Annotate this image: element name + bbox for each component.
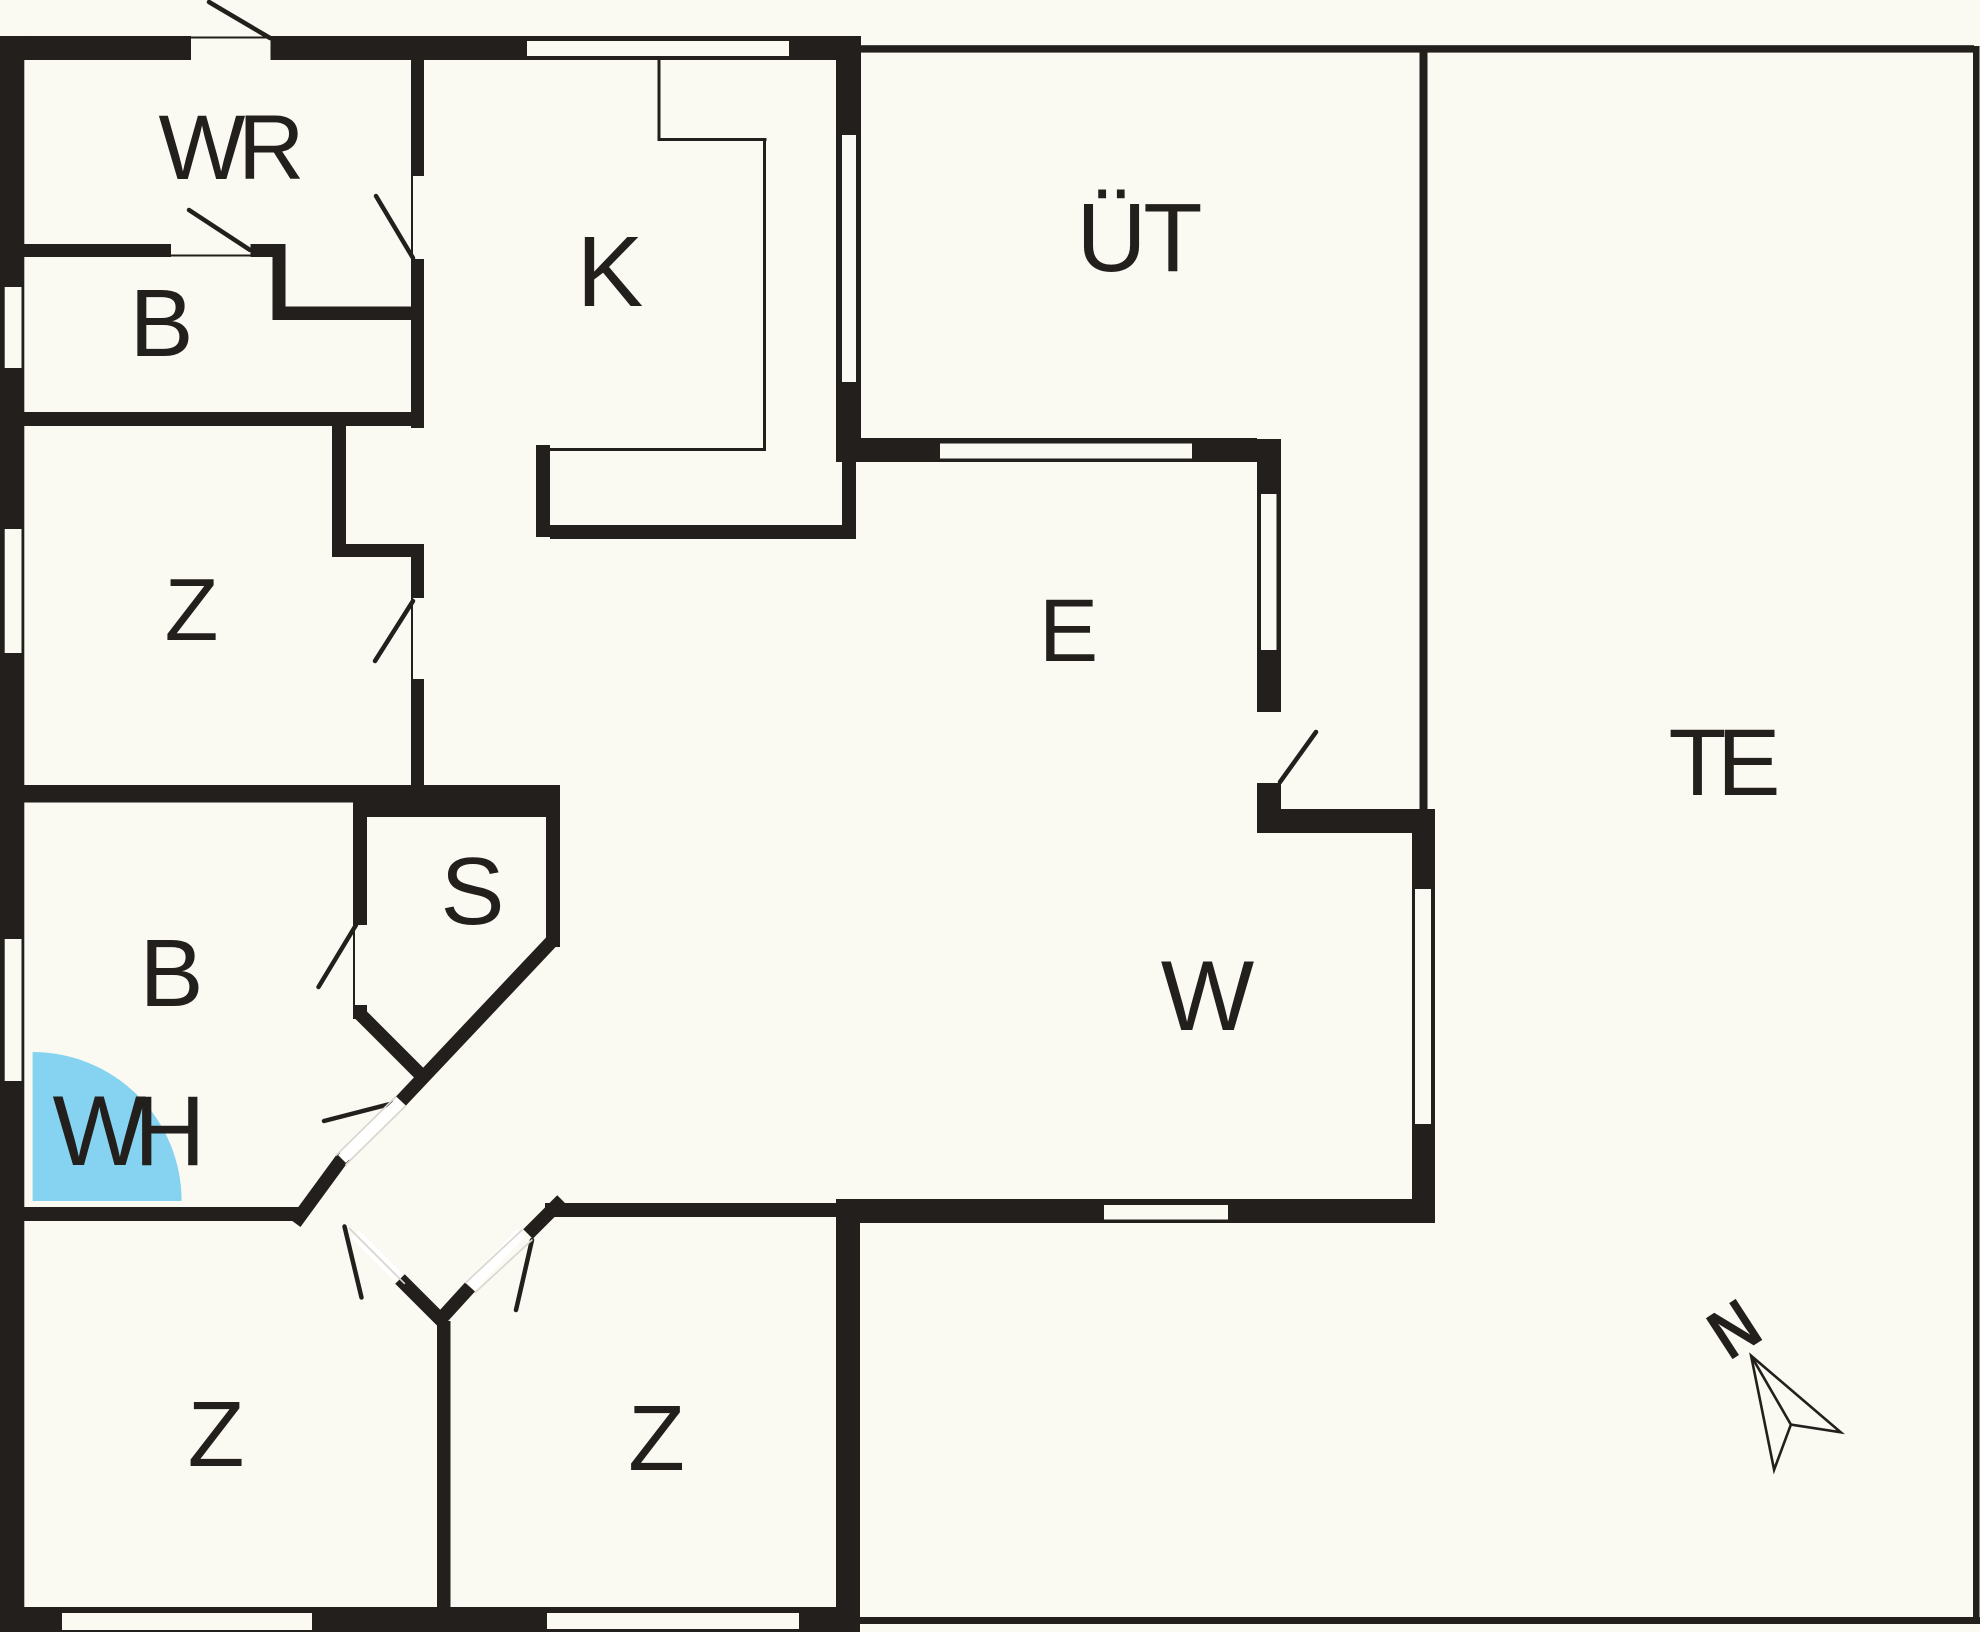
svg-text:E: E xyxy=(1039,580,1098,680)
svg-text:TE: TE xyxy=(1669,710,1781,816)
svg-text:B: B xyxy=(129,270,193,377)
svg-text:WR: WR xyxy=(159,97,305,199)
svg-text:W: W xyxy=(1161,940,1255,1051)
svg-text:Z: Z xyxy=(628,1386,685,1490)
svg-text:Z: Z xyxy=(188,1382,245,1486)
svg-text:WH: WH xyxy=(53,1075,206,1186)
svg-text:B: B xyxy=(139,920,203,1027)
svg-text:S: S xyxy=(440,838,504,945)
svg-text:K: K xyxy=(577,216,644,328)
svg-text:ÜT: ÜT xyxy=(1077,183,1203,292)
svg-text:Z: Z xyxy=(165,560,219,659)
